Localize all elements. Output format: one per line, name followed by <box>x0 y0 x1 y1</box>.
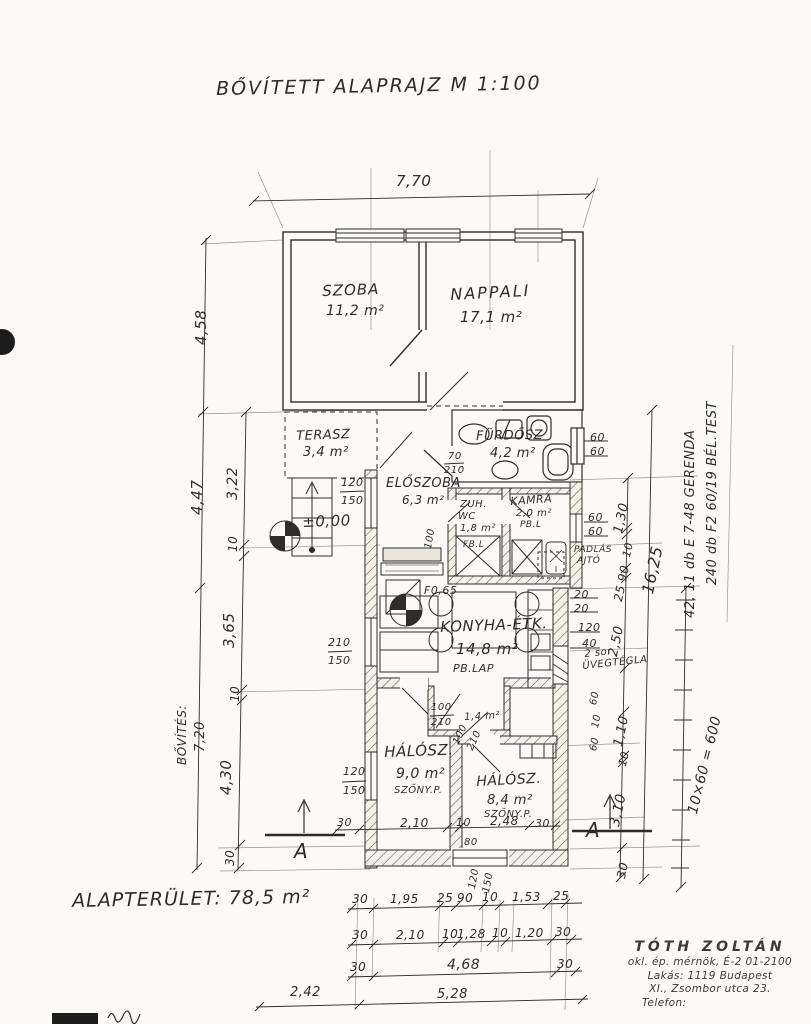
dim-door-furdo-w: 70 <box>448 452 462 462</box>
dim-inner-2: 2,10 <box>400 817 429 829</box>
note-belestest: 240 db F2 60/19 BÉL.TEST <box>706 401 719 585</box>
room-halosz2-area: 8,4 m² <box>487 794 533 807</box>
room-zuh-area: 1,8 m² <box>460 524 496 534</box>
room-kamra-area: 2,0 m² <box>516 509 552 519</box>
room-eloszoba-area: 6,3 m² <box>402 494 444 506</box>
dim-rowA-4: 10 <box>482 891 498 903</box>
room-kamra-finish: PB.L <box>520 521 541 530</box>
dim-rowC-0: 30 <box>350 961 366 973</box>
dim-rowB-3: 1,28 <box>457 928 486 940</box>
level-kitchen: F0,65 <box>424 585 457 596</box>
architect-stamp: TÓTH ZOLTÁN okl. ép. mérnök, É-2 01-2100… <box>614 938 806 1011</box>
room-eloszoba: ELŐSZOBA <box>386 477 461 490</box>
dim-rowB-4: 10 <box>492 927 508 939</box>
dim-rowB-2: 10 <box>442 928 458 940</box>
floor-plan-page: BŐVÍTETT ALAPRAJZ M 1:100 7,70 SZOBA 11,… <box>0 0 811 1024</box>
room-halosz1-area: 9,0 m² <box>396 767 445 781</box>
level-terrace: ±0,00 <box>302 513 351 530</box>
dim-win-kamra-2: 60 <box>588 526 603 537</box>
total-area-label: ALAPTERÜLET: 78,5 m² <box>72 888 310 911</box>
room-konyha-finish: PB.LAP <box>453 663 494 674</box>
margin-marks <box>0 329 140 1024</box>
dim-inner-5: 30 <box>535 818 550 829</box>
dim-k20-2: 20 <box>574 603 589 614</box>
dim-right-25: 25 <box>612 584 627 602</box>
room-furdosz: FÜRDŐSZ <box>476 429 543 443</box>
section-label-left: A <box>294 841 308 861</box>
note-bovites-2: 7,20 <box>194 721 207 752</box>
dim-top: 7,70 <box>396 174 431 189</box>
dim-rowC-2: 30 <box>557 958 573 970</box>
note-gerenda: 42, 11 db E 7-48 GERENDA <box>684 430 697 618</box>
dim-win-halosz-h: 150 <box>343 785 366 796</box>
dim-inner-4: 2,48 <box>490 815 519 827</box>
dim-right-10b: 10 <box>617 750 631 767</box>
dim-rowD-0: 2,42 <box>290 986 321 999</box>
dim-right-10a: 10 <box>621 541 635 558</box>
room-zuh: ZUH. <box>460 500 487 510</box>
stamp-line-5: Telefon: <box>614 997 806 1011</box>
room-kamra: KAMRA <box>510 493 553 507</box>
dim-left-458: 4,58 <box>194 310 209 345</box>
dim-right-30: 30 <box>615 861 630 879</box>
room-konyha-area: 14,8 m² <box>456 642 518 657</box>
dim-win-furdo-1: 60 <box>590 432 605 443</box>
dim-right-90: 90 <box>616 564 631 582</box>
dim-left-30: 30 <box>224 850 236 866</box>
dim-win-eloszoba-w: 120 <box>341 477 364 488</box>
note-padlas-2: AJTÓ <box>577 557 600 566</box>
dim-left-447: 4,47 <box>190 480 205 515</box>
stamp-name: TÓTH ZOLTÁN <box>614 938 806 956</box>
dim-gardrob-door-w: 100 <box>431 703 452 713</box>
level-symbols <box>270 521 422 626</box>
room-halosz1-finish: SZŐNY.P. <box>394 786 442 796</box>
dim-rowC-1: 4,68 <box>447 958 480 972</box>
room-furdosz-area: 4,2 m² <box>490 447 536 460</box>
dim-win-kamra-1: 60 <box>588 512 603 523</box>
room-gardrob-area: 1,4 m² <box>464 711 500 723</box>
dim-gardrob-door-h: 210 <box>431 718 452 728</box>
opening-nappali <box>427 372 503 411</box>
room-terasz: TERASZ <box>296 428 351 443</box>
dim-left-365: 3,65 <box>222 613 237 648</box>
room-zuh-finish: FB.L <box>463 541 484 550</box>
room-terasz-area: 3,4 m² <box>303 446 349 459</box>
room-szoba-area: 11,2 m² <box>326 304 384 318</box>
dim-rowD-1: 5,28 <box>437 988 468 1001</box>
note-bovites-1: BŐVÍTÉS: <box>176 705 188 765</box>
dim-left-322: 3,22 <box>226 467 240 500</box>
stamp-line-2: okl. ép. mérnök, É-2 01-2100 <box>614 956 806 970</box>
room-konyha: KONYHA-ÉTK. <box>440 616 548 635</box>
dim-win-eloszoba-h: 150 <box>341 495 364 506</box>
dim-k20-1: 20 <box>574 589 589 600</box>
room-szoba: SZOBA <box>322 282 380 299</box>
dim-rowA-0: 30 <box>352 893 368 905</box>
dim-inner-3: 10 <box>456 817 471 828</box>
note-padlas-1: PADLÁS <box>574 546 612 555</box>
dim-left-10a: 10 <box>227 536 239 552</box>
dim-rowA-1: 1,95 <box>390 893 419 905</box>
dim-rowB-1: 2,10 <box>396 929 425 941</box>
dim-rowB-5: 1,20 <box>515 927 544 939</box>
room-halosz2: HÁLÓSZ. <box>476 772 542 789</box>
dim-win-furdo-2: 60 <box>590 446 605 457</box>
room-nappali-area: 17,1 m² <box>460 310 522 325</box>
dim-inner-1: 30 <box>337 817 352 828</box>
dim-rowA-2: 25 <box>437 892 453 904</box>
dim-k120: 120 <box>578 622 601 633</box>
dim-rowB-6: 30 <box>555 926 571 938</box>
dim-win-konyha-w: 210 <box>328 637 351 648</box>
dim-win-halosz-w: 120 <box>343 766 366 777</box>
dim-left-430: 4,30 <box>219 760 234 795</box>
room-wc: WC <box>458 512 476 522</box>
stamp-line-4: XI., Zsombor utca 23. <box>614 983 806 997</box>
stamp-line-3: Lakás: 1119 Budapest <box>614 970 806 984</box>
room-halosz1: HÁLÓSZ. <box>384 743 454 760</box>
dim-rowB-0: 30 <box>352 929 368 941</box>
dim-left-10b: 10 <box>229 686 241 702</box>
windows-top <box>336 229 562 242</box>
dim-door-furdo-h: 210 <box>444 466 465 476</box>
dim-win-bottom: 80 <box>464 838 478 848</box>
section-label-right: A <box>586 820 600 840</box>
dim-rowA-6: 25 <box>553 890 569 902</box>
room-nappali: NAPPALI <box>450 283 531 303</box>
dim-rowA-3: 90 <box>457 892 473 904</box>
dim-win-konyha-h: 150 <box>328 655 351 666</box>
dim-rowA-5: 1,53 <box>512 891 541 903</box>
